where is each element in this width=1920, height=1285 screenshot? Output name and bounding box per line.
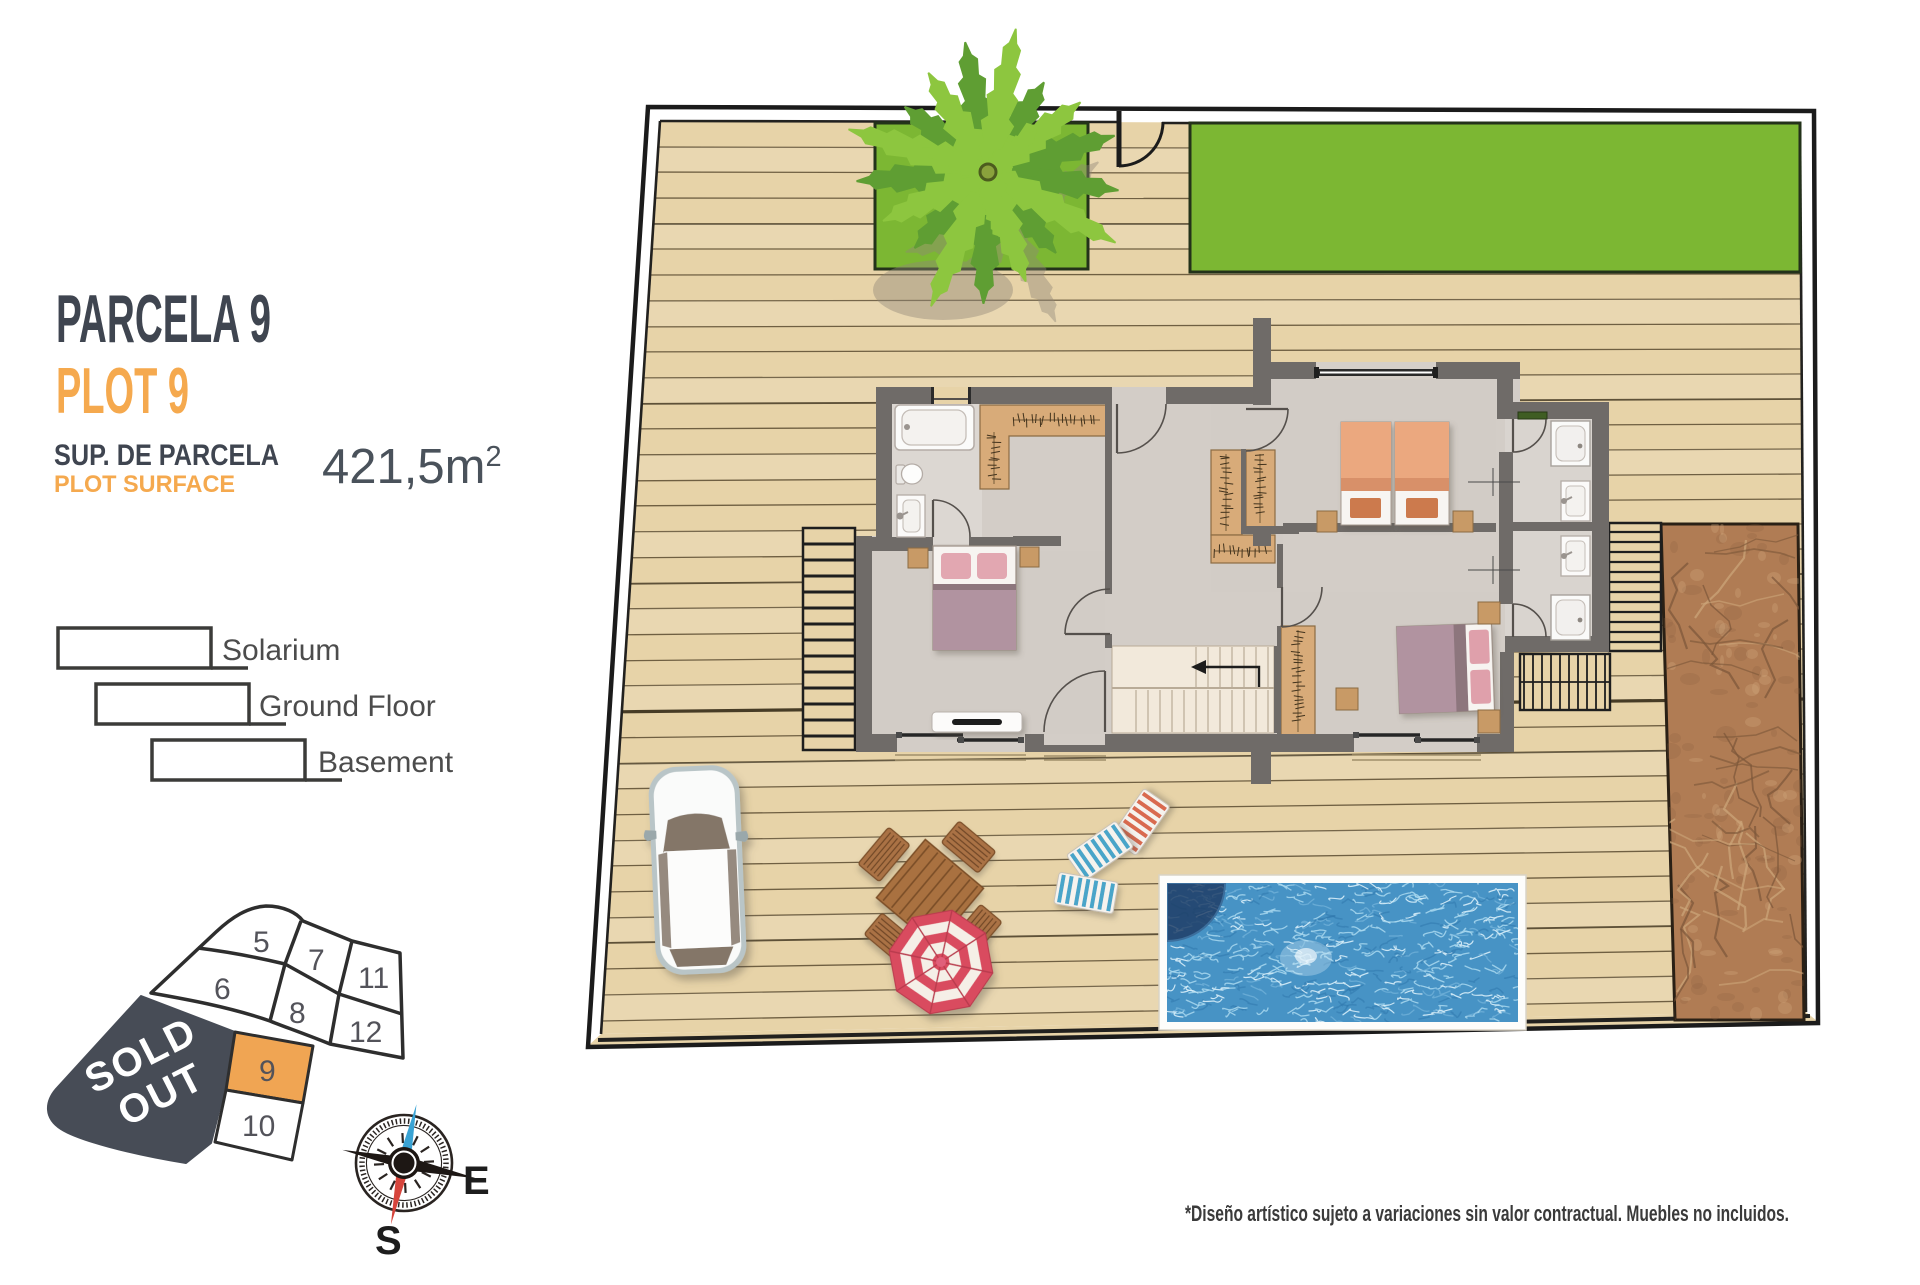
svg-text:PLOT 9: PLOT 9 (56, 354, 189, 427)
svg-text:*Diseño artístico sujeto a var: *Diseño artístico sujeto a variaciones s… (1185, 1201, 1789, 1226)
svg-text:S: S (375, 1219, 402, 1263)
svg-text:8: 8 (289, 997, 306, 1030)
svg-text:5: 5 (253, 926, 270, 959)
svg-text:10: 10 (242, 1110, 275, 1143)
svg-text:6: 6 (214, 973, 231, 1006)
svg-text:Ground Floor: Ground Floor (259, 690, 436, 723)
svg-text:7: 7 (308, 944, 325, 977)
svg-text:421,5m2: 421,5m2 (322, 440, 502, 494)
svg-text:12: 12 (349, 1016, 382, 1049)
svg-text:Basement: Basement (318, 746, 454, 779)
svg-text:11: 11 (358, 962, 389, 995)
svg-text:SUP. DE PARCELA: SUP. DE PARCELA (54, 439, 279, 472)
svg-text:9: 9 (259, 1055, 276, 1088)
svg-text:PARCELA 9: PARCELA 9 (56, 281, 271, 357)
svg-text:E: E (463, 1159, 490, 1203)
svg-text:Solarium: Solarium (222, 634, 340, 667)
svg-text:PLOT SURFACE: PLOT SURFACE (54, 471, 235, 498)
